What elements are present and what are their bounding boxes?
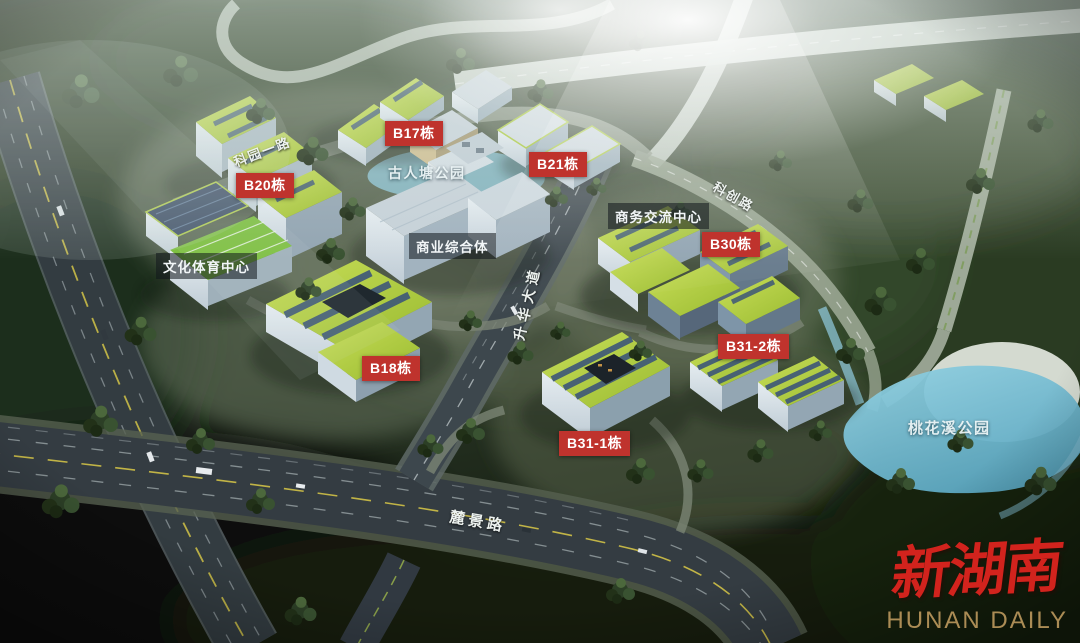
facility-label-commercial-complex: 商业综合体	[409, 233, 496, 259]
facility-label-business-exchange-center: 商务交流中心	[608, 203, 709, 229]
building-badge-b21: B21栋	[529, 152, 587, 177]
building-badge-b31-1: B31-1栋	[559, 431, 630, 456]
logo-english-wordmark: HUNAN DAILY	[886, 607, 1068, 635]
building-badge-b31-2: B31-2栋	[718, 334, 789, 359]
aerial-masterplan-rendering: 科园一路 科创路 升华大道 麓景路 古人塘公园 桃花溪公园 商业综合体 商务交流…	[0, 0, 1080, 643]
building-badge-b20: B20栋	[236, 173, 294, 198]
building-badge-b18: B18栋	[362, 356, 420, 381]
facility-label-culture-sports-center: 文化体育中心	[156, 253, 257, 279]
park-label-gurentang: 古人塘公园	[388, 163, 466, 183]
building-badge-b17: B17栋	[385, 121, 443, 146]
hunan-daily-logo: 新湖南 HUNAN DAILY	[886, 541, 1068, 635]
park-label-taohuaxi: 桃花溪公园	[908, 417, 991, 438]
building-badge-b30: B30栋	[702, 232, 760, 257]
logo-chinese-calligraphy: 新湖南	[882, 536, 1072, 603]
